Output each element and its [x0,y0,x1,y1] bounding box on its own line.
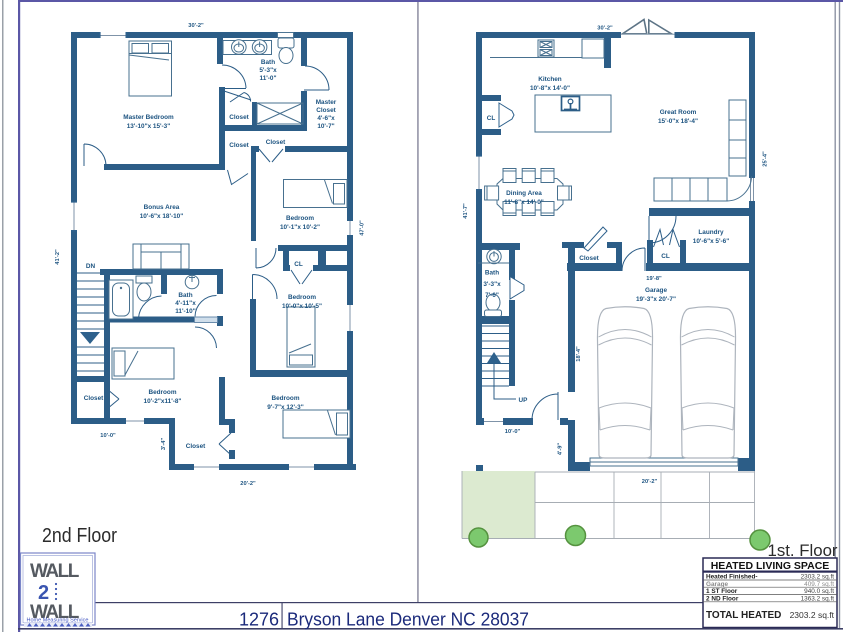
svg-text:Bonus Area: Bonus Area [144,204,180,211]
svg-text:Closet: Closet [266,139,286,146]
svg-text:Closet: Closet [229,114,249,121]
svg-text:1 ST Floor: 1 ST Floor [706,588,738,595]
svg-text:TOTAL HEATED: TOTAL HEATED [706,610,781,621]
svg-text:10'-7": 10'-7" [317,123,334,130]
svg-text:Dining Area: Dining Area [506,190,542,197]
svg-text:Great Room: Great Room [660,109,697,116]
svg-text:Closet: Closet [84,395,104,402]
svg-text:9'-7"x 12'-3": 9'-7"x 12'-3" [267,404,303,411]
svg-text:Bath: Bath [178,292,192,299]
svg-text:15'-0"x 18'-4": 15'-0"x 18'-4" [658,118,698,125]
svg-text:2: 2 [38,582,49,604]
svg-text:10'-0"x 10'-5": 10'-0"x 10'-5" [282,303,322,310]
svg-text:11'-8"x 14'-0": 11'-8"x 14'-0" [504,199,544,206]
svg-text:10'-2"x11'-8": 10'-2"x11'-8" [144,398,182,405]
svg-text:Garage: Garage [706,581,728,588]
svg-text:10'-0": 10'-0" [100,433,116,439]
svg-text:10'-0": 10'-0" [505,429,521,435]
svg-text:Closet: Closet [579,255,599,262]
svg-text:CL: CL [487,115,496,122]
svg-text:11'-0": 11'-0" [260,75,277,82]
svg-text:2 ND Floor: 2 ND Floor [706,596,739,603]
svg-text:UP: UP [519,397,529,404]
svg-text:4'-6"x: 4'-6"x [317,115,335,122]
svg-text:30'-2": 30'-2" [597,26,613,32]
svg-text:Kitchen: Kitchen [538,76,562,83]
svg-text:DN: DN [86,263,96,270]
svg-text:25'-4": 25'-4" [763,151,769,167]
svg-text:41'-7": 41'-7" [463,203,469,219]
svg-text:Master Bedroom: Master Bedroom [123,114,174,121]
svg-text:18'-4": 18'-4" [576,346,582,362]
svg-text:Bedroom: Bedroom [148,389,176,396]
svg-text:3'-4": 3'-4" [161,438,167,451]
svg-text:10'-6"x 18'-10": 10'-6"x 18'-10" [140,213,184,220]
svg-text:Closet: Closet [186,443,206,450]
svg-text:47'-0": 47'-0" [360,220,366,236]
svg-text:Garage: Garage [645,287,667,294]
svg-text:10'-6"x 5'-6": 10'-6"x 5'-6" [693,238,729,245]
svg-text:CL: CL [661,253,670,260]
svg-text:CL: CL [294,261,303,268]
svg-text:20'-2": 20'-2" [240,481,256,487]
svg-text:4'-9": 4'-9" [558,443,564,456]
svg-text:2nd Floor: 2nd Floor [42,524,117,547]
svg-text:11'-10": 11'-10" [175,308,196,315]
svg-text:Bryson Lane Denver NC 28037: Bryson Lane Denver NC 28037 [287,610,529,630]
svg-text:WALL: WALL [30,561,80,582]
svg-text:Bath: Bath [485,270,499,277]
svg-text:Bath: Bath [261,59,275,66]
svg-text:1363.2 sq.ft: 1363.2 sq.ft [801,596,835,603]
svg-text:10'-1"x 10'-2": 10'-1"x 10'-2" [280,224,320,231]
svg-text:20'-2": 20'-2" [642,479,658,485]
svg-text:Heated Finished-: Heated Finished- [706,574,758,581]
svg-text:Laundry: Laundry [698,229,724,236]
svg-text:Bedroom: Bedroom [286,215,314,222]
svg-text:Closet: Closet [229,142,249,149]
svg-text:409.7 sq.ft: 409.7 sq.ft [804,581,834,588]
svg-text:19'-8": 19'-8" [646,276,662,282]
svg-text:3'-3"x: 3'-3"x [483,281,501,288]
svg-text:5'-3"x: 5'-3"x [259,67,277,74]
svg-text:1276: 1276 [239,610,279,630]
svg-text:2303.2 sq.ft: 2303.2 sq.ft [790,610,835,620]
svg-text:13'-10"x 15'-3": 13'-10"x 15'-3" [127,123,171,130]
svg-text:7'-6": 7'-6" [485,292,499,299]
svg-text:Bedroom: Bedroom [271,395,299,402]
svg-text:19'-3"x 20'-7": 19'-3"x 20'-7" [636,296,676,303]
svg-text:10'-8"x 14'-0": 10'-8"x 14'-0" [530,85,570,92]
svg-text:940.0 sq.ft: 940.0 sq.ft [804,588,834,595]
svg-text:Closet: Closet [316,107,336,114]
svg-text:Master: Master [316,99,337,106]
svg-text:30'-2": 30'-2" [188,23,204,29]
svg-text:2303.2 sq.ft: 2303.2 sq.ft [801,574,835,581]
svg-text:1st. Floor: 1st. Floor [768,541,838,560]
svg-text:Bedroom: Bedroom [288,294,316,301]
svg-text:4'-11"x: 4'-11"x [175,300,196,307]
svg-text:HEATED LIVING SPACE: HEATED LIVING SPACE [711,560,830,572]
svg-text:41'-2": 41'-2" [55,249,61,265]
